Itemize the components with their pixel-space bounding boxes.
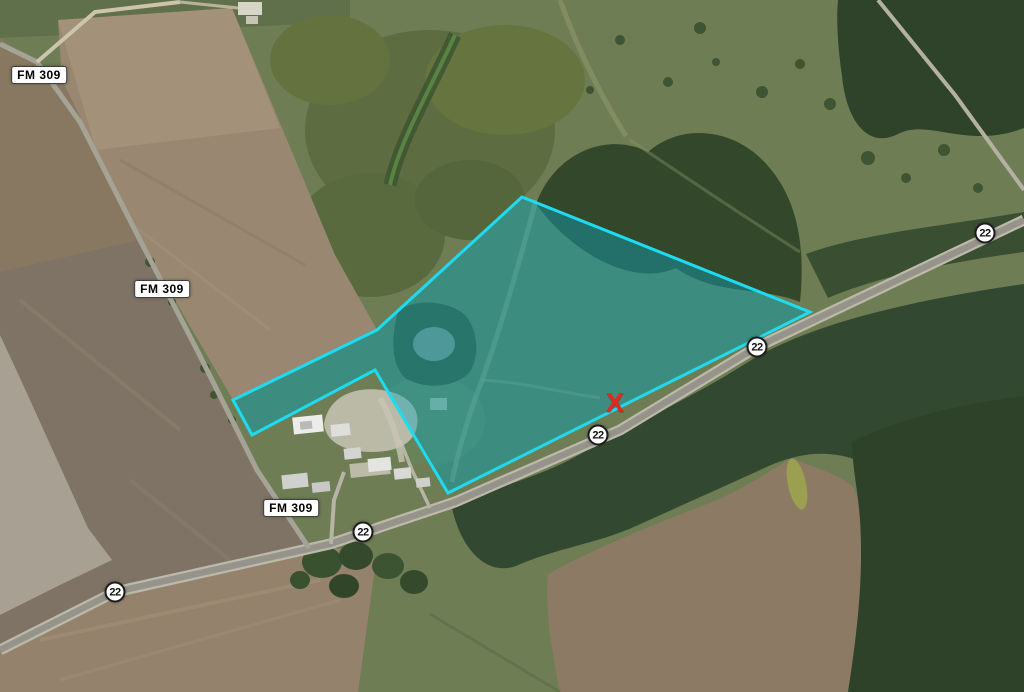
fm-309-road-label: FM 309 [11,66,67,84]
highway-22-shield: 22 [588,425,609,446]
highway-22-shield: 22 [353,522,374,543]
fm-309-road-label: FM 309 [263,499,319,517]
highway-22-shield: 22 [105,582,126,603]
map-canvas[interactable]: 2222222222FM 309FM 309FM 309 X [0,0,1024,692]
fm-309-road-label: FM 309 [134,280,190,298]
highway-22-shield: 22 [975,223,996,244]
x-marker: X [606,389,624,416]
highway-22-shield: 22 [747,337,768,358]
map-annotations: 2222222222FM 309FM 309FM 309 [0,0,1024,692]
